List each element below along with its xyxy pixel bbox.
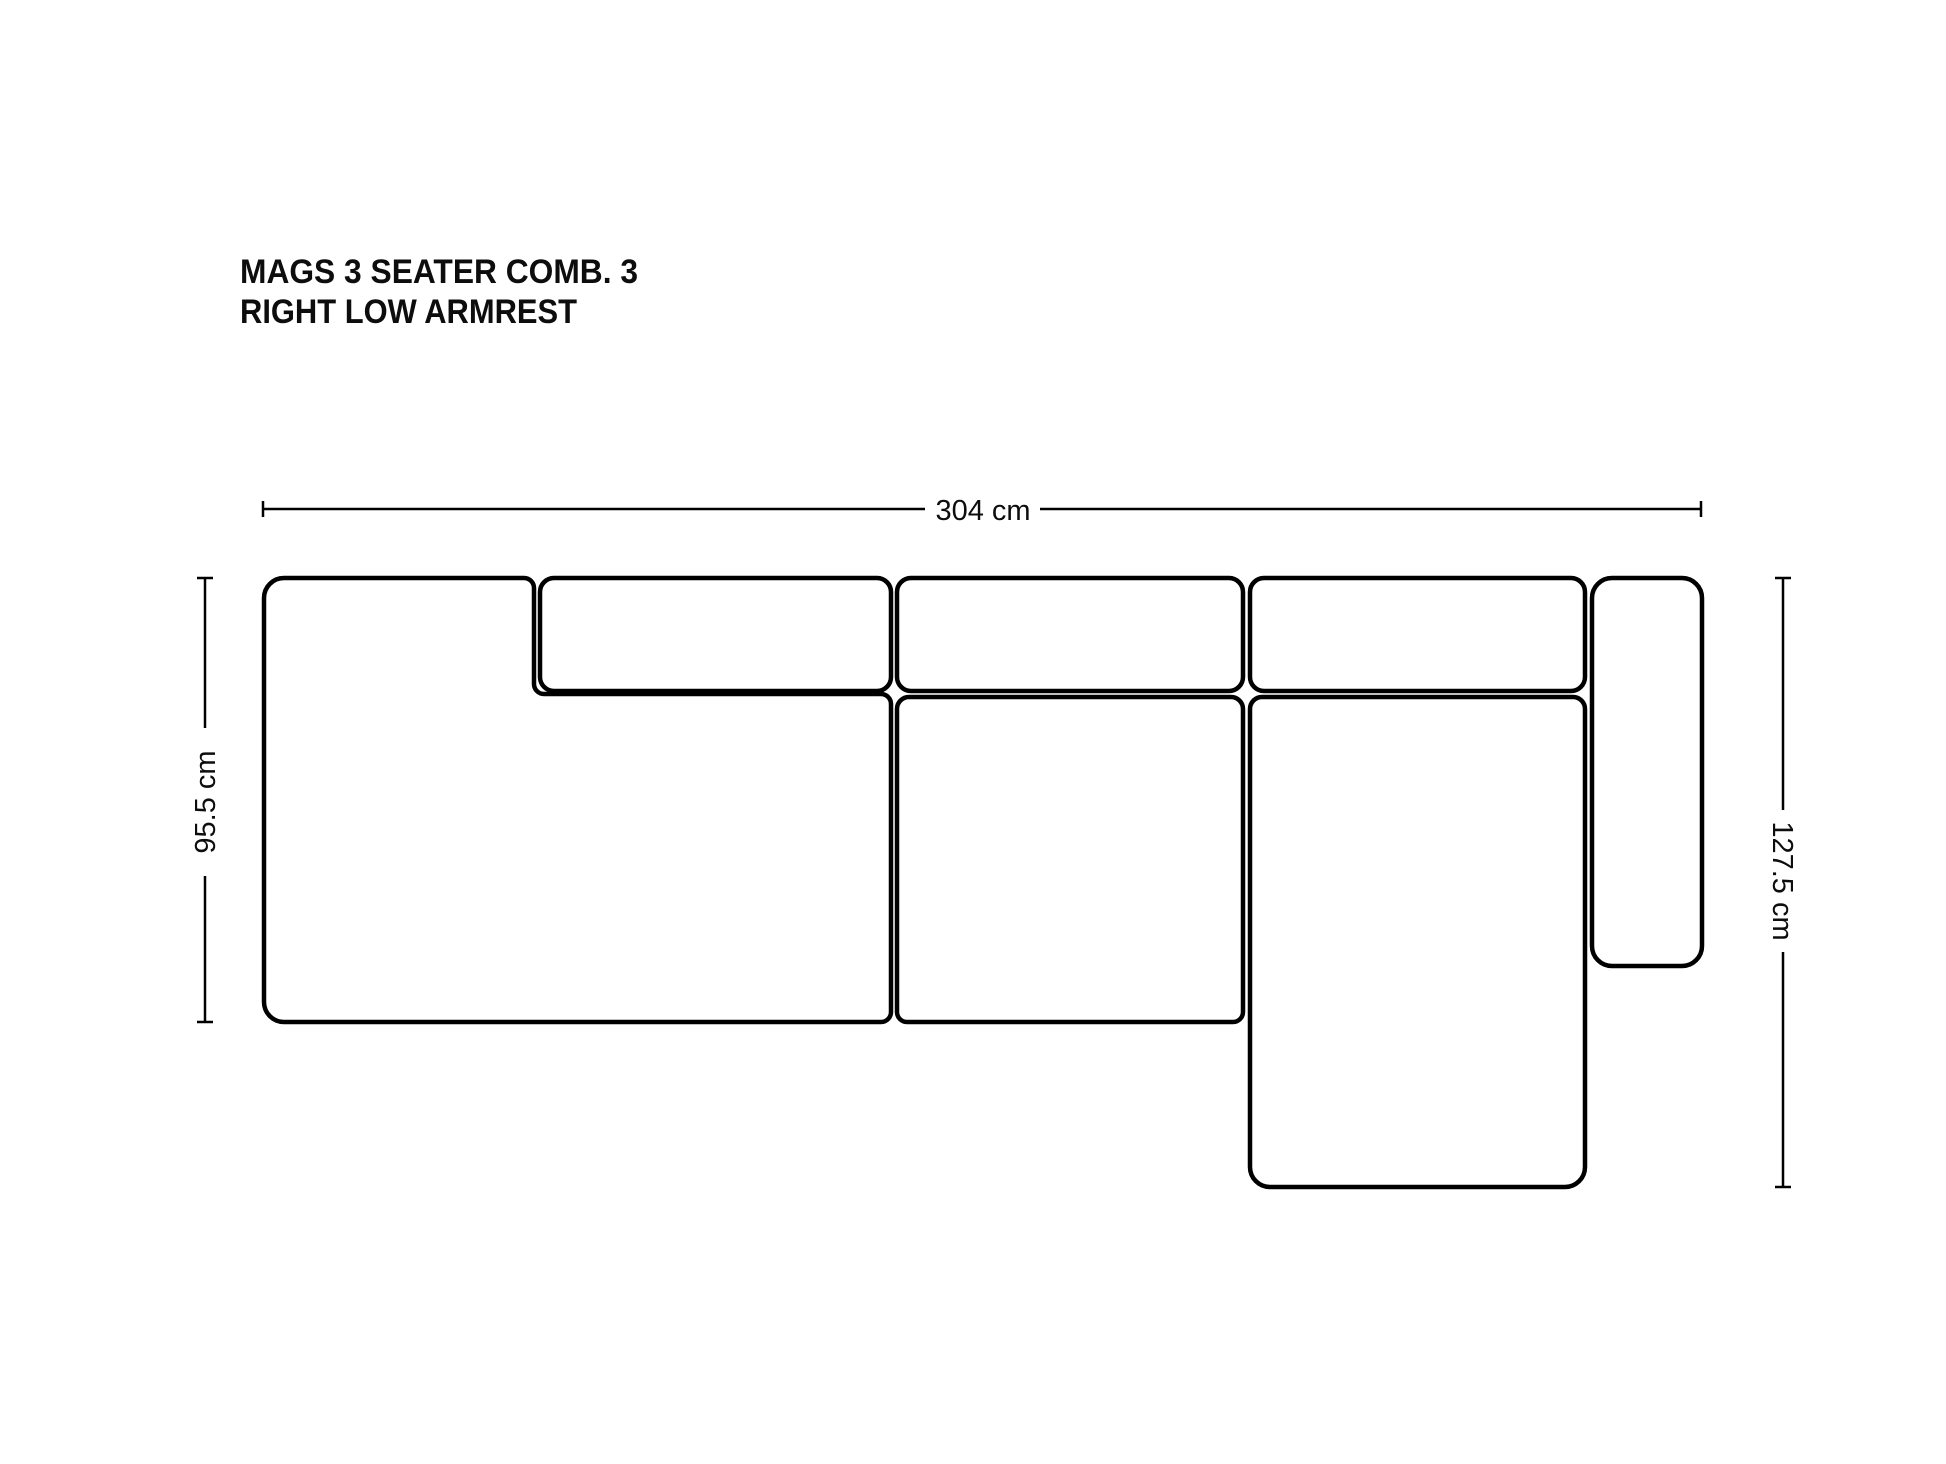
right-depth-dimension-label: 127.5 cm [1766, 821, 1798, 940]
chaise-seat-module [1250, 697, 1585, 1187]
page-title-line1: MAGS 3 SEATER COMB. 3 [240, 253, 638, 291]
right-low-armrest [1592, 578, 1702, 966]
page-title-line2: RIGHT LOW ARMREST [240, 293, 577, 331]
back-cushion-left [540, 578, 891, 691]
sofa-outline [264, 578, 1702, 1187]
product-dimension-diagram: MAGS 3 SEATER COMB. 3 RIGHT LOW ARMREST [0, 0, 1946, 1464]
page-title: MAGS 3 SEATER COMB. 3 RIGHT LOW ARMREST [240, 253, 638, 331]
back-cushion-middle [897, 578, 1243, 691]
left-depth-dimension-label: 95.5 cm [190, 750, 222, 853]
middle-seat-module [897, 697, 1243, 1022]
back-cushion-right [1250, 578, 1585, 691]
width-dimension-label: 304 cm [935, 495, 1030, 527]
sofa-plan-svg: MAGS 3 SEATER COMB. 3 RIGHT LOW ARMREST [0, 0, 1946, 1464]
